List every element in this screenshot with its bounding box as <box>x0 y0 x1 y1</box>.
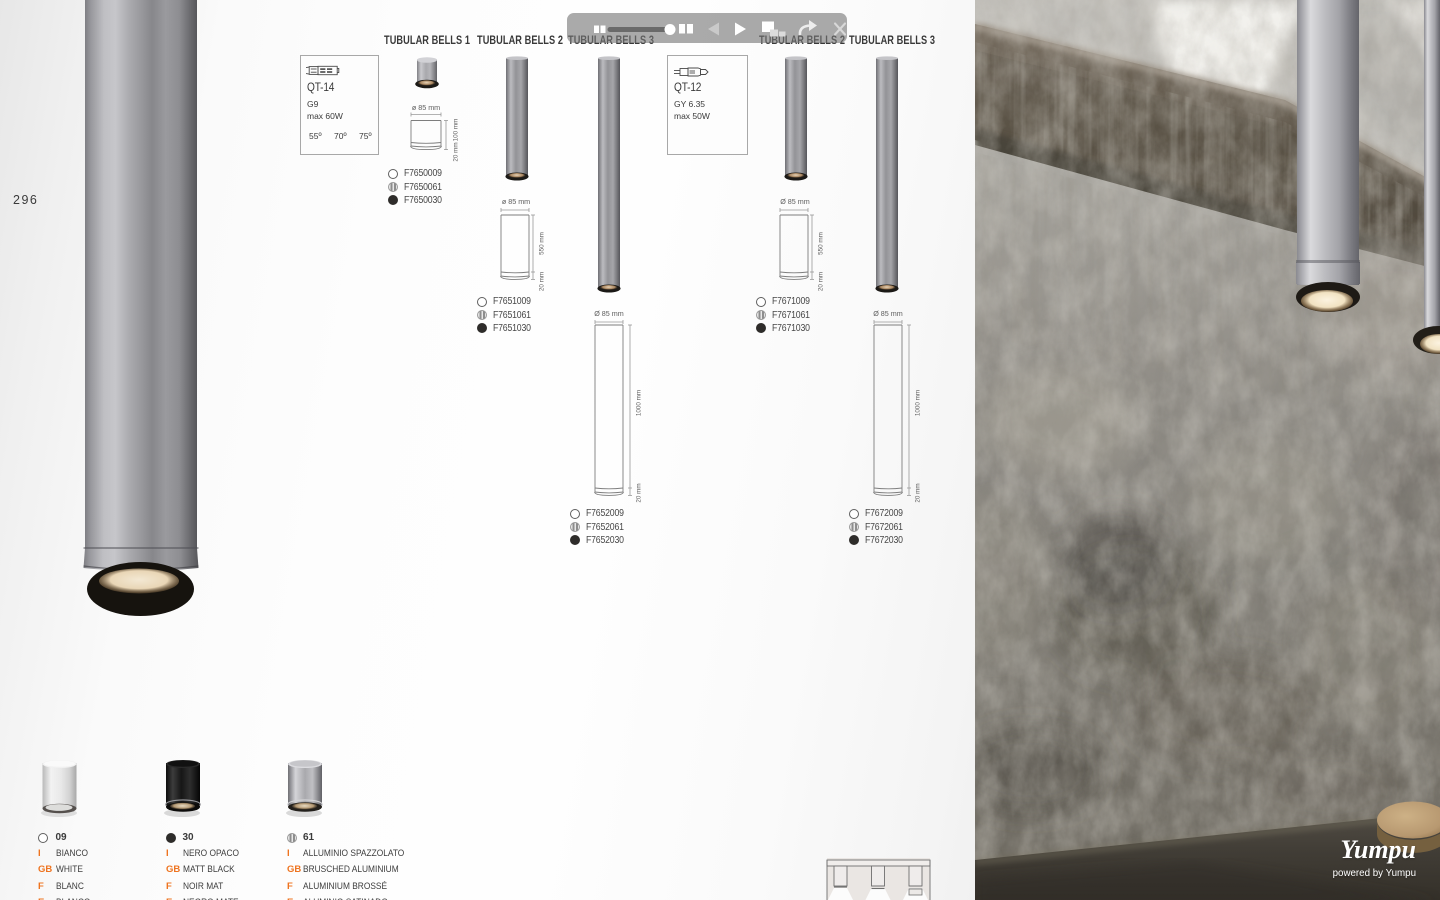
svg-text:550 mm: 550 mm <box>818 232 825 255</box>
svg-text:Ø 85 mm: Ø 85 mm <box>594 309 624 318</box>
svg-text:1000 mm: 1000 mm <box>636 390 643 416</box>
svg-text:20 mm: 20 mm <box>818 272 825 291</box>
svg-text:20 mm: 20 mm <box>636 483 643 502</box>
svg-text:Ø 85 mm: Ø 85 mm <box>780 197 810 206</box>
svg-text:Ø 85 mm: Ø 85 mm <box>873 309 903 318</box>
svg-text:1000 mm: 1000 mm <box>915 390 922 416</box>
svg-text:ø 85 mm: ø 85 mm <box>502 197 530 206</box>
svg-text:20 mm: 20 mm <box>915 483 922 502</box>
svg-text:550 mm: 550 mm <box>539 232 546 255</box>
svg-text:ø 85 mm: ø 85 mm <box>412 103 440 112</box>
svg-text:20 mm: 20 mm <box>453 142 460 161</box>
svg-text:20 mm: 20 mm <box>539 272 546 291</box>
svg-text:100 mm: 100 mm <box>453 119 460 142</box>
